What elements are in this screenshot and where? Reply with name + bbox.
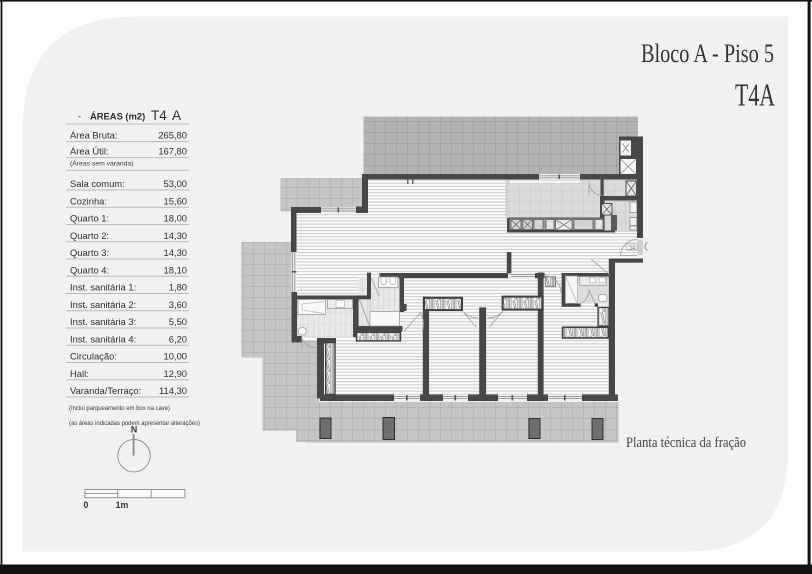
svg-text:53,00: 53,00 [164,178,187,189]
svg-text:Circulação:: Circulação: [70,351,117,362]
svg-text:Inst. sanitária 4:: Inst. sanitária 4: [70,333,136,344]
svg-text:0: 0 [84,500,89,510]
svg-text:A: A [172,108,182,123]
svg-text:N: N [131,425,137,435]
svg-text:265,80: 265,80 [158,130,187,141]
svg-text:Área Útil:: Área Útil: [70,146,109,157]
svg-text:Cozinha:: Cozinha: [70,195,107,206]
svg-text:1m: 1m [116,500,129,510]
svg-text:14,30: 14,30 [164,230,187,241]
svg-text:-: - [78,111,81,122]
svg-text:114,30: 114,30 [159,385,187,396]
svg-text:Quarto 1:: Quarto 1: [70,213,109,224]
svg-text:3,60: 3,60 [169,299,187,310]
svg-text:6,20: 6,20 [169,333,187,344]
svg-text:14,30: 14,30 [164,247,187,258]
svg-text:Quarto 2:: Quarto 2: [70,230,109,241]
svg-text:Varanda/Terraço:: Varanda/Terraço: [70,385,141,396]
svg-text:15,60: 15,60 [164,195,187,206]
svg-text:5,50: 5,50 [169,316,187,327]
svg-text:167,80: 167,80 [158,146,187,157]
svg-text:Área Bruta:: Área Bruta: [70,130,117,141]
svg-text:(Inclui parqueamento em box na: (Inclui parqueamento em box na cave) [69,405,170,412]
svg-text:Inst. sanitária 2:: Inst. sanitária 2: [70,299,136,310]
svg-text:ÁREAS (m2): ÁREAS (m2) [90,111,145,122]
svg-text:Inst. sanitária 3:: Inst. sanitária 3: [70,316,136,327]
svg-text:Hall:: Hall: [70,368,89,379]
svg-text:1,80: 1,80 [169,282,187,293]
svg-text:18,10: 18,10 [164,264,187,275]
svg-text:Sala comum:: Sala comum: [70,178,125,189]
svg-text:14: 14 [630,246,636,252]
svg-text:12,90: 12,90 [164,368,187,379]
svg-text:18,00: 18,00 [164,213,187,224]
svg-text:Quarto 4:: Quarto 4: [70,264,109,275]
svg-text:(Áreas sem varanda): (Áreas sem varanda) [70,159,133,168]
svg-text:Bloco A - Piso 5: Bloco A - Piso 5 [641,38,774,68]
svg-text:Planta técnica da fração: Planta técnica da fração [626,435,746,451]
svg-text:T4: T4 [151,108,167,123]
svg-text:Inst. sanitária 1:: Inst. sanitária 1: [70,282,136,293]
svg-text:T4A: T4A [735,77,775,113]
svg-text:10,00: 10,00 [164,351,187,362]
svg-text:Quarto 3:: Quarto 3: [70,247,109,258]
